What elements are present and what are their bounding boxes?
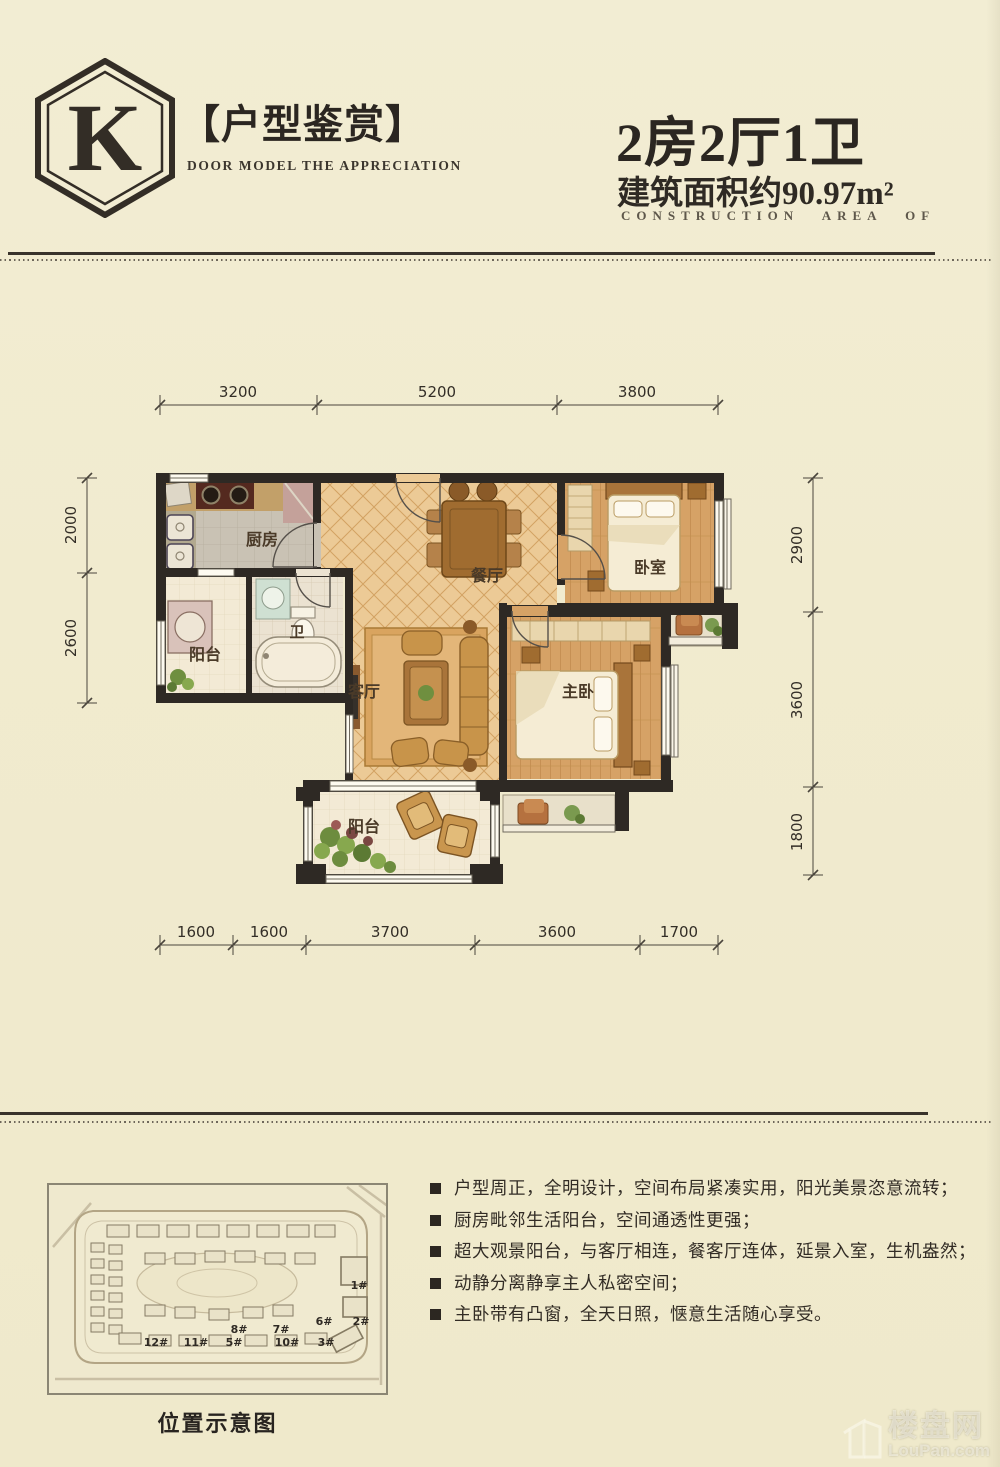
site-label-12: 12# [144,1336,169,1349]
feature-text: 动静分离静享主人私密空间； [454,1273,688,1293]
label-bedroom: 卧室 [634,558,666,577]
feature-text: 超大观景阳台，与客厅相连，餐客厅连体，延景入室，生机盎然； [454,1241,976,1261]
dim-top-2: 3800 [618,383,656,401]
label-master: 主卧 [562,682,594,701]
logo-hexagon: K [34,58,176,218]
label-balcony-left: 阳台 [189,645,221,664]
divider-bottom-dotted [0,1121,992,1123]
feature-item: 户型周正，全明设计，空间布局紧凑实用，阳光美景恣意流转； [430,1178,995,1198]
bullet-square-icon [430,1309,441,1320]
divider-top-dotted [0,259,992,261]
area-text-en: CONSTRUCTION AREA OF [621,208,935,224]
feature-item: 厨房毗邻生活阳台，空间通透性更强； [430,1210,995,1230]
brochure-page: { "header": { "logo_letter": "K", "title… [0,0,1000,1467]
page-title: 【户型鉴赏】 [180,92,426,150]
dim-left-1: 2600 [62,619,80,657]
dim-right-2: 1800 [788,813,806,851]
bullet-square-icon [430,1183,441,1194]
label-dining: 餐厅 [470,566,503,585]
feature-list: 户型周正，全明设计，空间布局紧凑实用，阳光美景恣意流转； 厨房毗邻生活阳台，空间… [430,1178,995,1336]
logo-letter: K [68,84,143,191]
dim-bottom-3: 3600 [538,923,576,941]
site-label-10: 10# [275,1336,300,1349]
feature-text: 厨房毗邻生活阳台，空间通透性更强； [454,1210,760,1230]
site-label-7: 7# [273,1323,290,1336]
feature-text: 户型周正，全明设计，空间布局紧凑实用，阳光美景恣意流转； [454,1178,958,1198]
site-label-3: 3# [318,1336,335,1349]
watermark-cn: 楼盘网 [888,1401,990,1445]
watermark-en: LouPan.com [888,1441,990,1461]
site-label-1: 1# [351,1279,368,1292]
site-label-2: 2# [353,1315,370,1328]
building-icon [840,1407,886,1459]
site-label-6: 6# [316,1315,333,1328]
label-living: 客厅 [348,682,380,701]
dim-bottom-2: 3700 [371,923,409,941]
dim-right-0: 2900 [788,526,806,564]
divider-top-solid [8,252,935,255]
dim-bottom-4: 1700 [660,923,698,941]
dim-left-0: 2000 [62,506,80,544]
label-balcony-bottom: 阳台 [348,817,380,836]
page-subtitle-en: DOOR MODEL THE APPRECIATION [187,158,462,174]
site-label-8: 8# [231,1323,248,1336]
floor-plan: 厨房 阳台 卫 餐厅 客厅 卧室 主卧 阳台 3200 5200 3800 16… [0,375,1000,975]
site-location-map: 1# 2# 6# 8# 7# 12# 11# 5# 10# 3# [47,1183,388,1395]
area-text: 建筑面积约90.97m² [617,166,894,214]
feature-text: 主卧带有凸窗，全天日照，惬意生活随心享受。 [454,1304,832,1324]
feature-item: 超大观景阳台，与客厅相连，餐客厅连体，延景入室，生机盎然； [430,1241,995,1261]
label-bath: 卫 [289,624,304,641]
feature-item: 主卧带有凸窗，全天日照，惬意生活随心享受。 [430,1304,995,1324]
dim-bottom-0: 1600 [177,923,215,941]
dim-top-1: 5200 [418,383,456,401]
bullet-square-icon [430,1278,441,1289]
bullet-square-icon [430,1246,441,1257]
label-kitchen: 厨房 [246,530,278,549]
site-map-caption: 位置示意图 [47,1406,388,1438]
site-label-11: 11# [184,1336,209,1349]
divider-bottom-solid [0,1112,928,1115]
watermark: 楼盘网 LouPan.com [840,1401,990,1461]
feature-item: 动静分离静享主人私密空间； [430,1273,995,1293]
site-label-5: 5# [226,1336,243,1349]
dim-right-1: 3600 [788,681,806,719]
bullet-square-icon [430,1215,441,1226]
dim-top-0: 3200 [219,383,257,401]
dim-bottom-1: 1600 [250,923,288,941]
